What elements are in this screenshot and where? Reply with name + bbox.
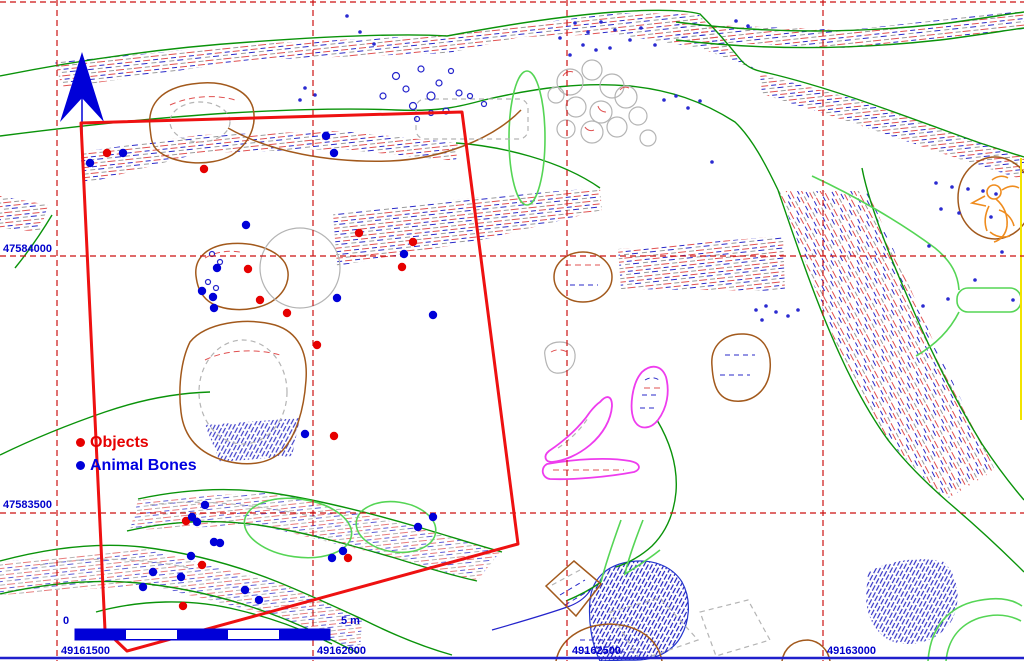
- x-coordinate-label: 49161500: [61, 645, 110, 657]
- animal-bone-point: [216, 539, 224, 547]
- animal-bone-point: [193, 518, 201, 526]
- orange-figure: [972, 176, 1019, 242]
- animal-bone-point: [322, 132, 330, 140]
- animal-bone-point: [339, 547, 347, 555]
- object-point: [330, 432, 338, 440]
- animal-bone-point: [255, 596, 263, 604]
- animal-bone-point: [177, 573, 185, 581]
- object-point: [200, 165, 208, 173]
- object-point: [344, 554, 352, 562]
- object-point: [355, 229, 363, 237]
- survey-map: 05 m 49161500491620004916250049163000475…: [0, 0, 1024, 661]
- animal-bone-point: [400, 250, 408, 258]
- animal-bone-point: [210, 304, 218, 312]
- animal-bone-point: [119, 149, 127, 157]
- object-point: [244, 265, 252, 273]
- animal-bone-point: [333, 294, 341, 302]
- animal-bone-point: [213, 264, 221, 272]
- legend-objects-label: Objects: [90, 435, 149, 451]
- svg-text:0: 0: [63, 615, 69, 627]
- y-coordinate-label: 47583500: [3, 499, 52, 511]
- animal-bone-point: [414, 523, 422, 531]
- animal-bone-point: [139, 583, 147, 591]
- object-point: [179, 602, 187, 610]
- animal-bone-point: [86, 159, 94, 167]
- animal-bone-point: [242, 221, 250, 229]
- x-coordinate-label: 49162500: [572, 645, 621, 657]
- x-coordinate-label: 49163000: [827, 645, 876, 657]
- animal-bone-point: [429, 311, 437, 319]
- animal-bone-point: [149, 568, 157, 576]
- object-point: [283, 309, 291, 317]
- map-canvas[interactable]: 05 m 49161500491620004916250049163000475…: [0, 0, 1024, 661]
- animal-bone-point: [201, 501, 209, 509]
- legend: Objects Animal Bones: [76, 431, 197, 477]
- object-point: [409, 238, 417, 246]
- animal-bone-point: [241, 586, 249, 594]
- object-point: [103, 149, 111, 157]
- legend-row-animal-bones: Animal Bones: [76, 454, 197, 477]
- animal-bones-dot-icon: [76, 461, 85, 470]
- legend-animal-bones-label: Animal Bones: [90, 458, 197, 474]
- objects-dot-icon: [76, 438, 85, 447]
- stone-circles-cluster: [548, 60, 656, 146]
- hatched-slope-bands: [0, 12, 1024, 654]
- animal-bone-point: [187, 552, 195, 560]
- animal-bone-point: [429, 513, 437, 521]
- animal-bone-point: [209, 293, 217, 301]
- svg-text:5 m: 5 m: [341, 615, 360, 627]
- object-point: [398, 263, 406, 271]
- animal-bone-point: [198, 287, 206, 295]
- x-coordinate-label: 49162000: [317, 645, 366, 657]
- legend-row-objects: Objects: [76, 431, 197, 454]
- object-point: [198, 561, 206, 569]
- object-point: [256, 296, 264, 304]
- animal-bone-point: [301, 430, 309, 438]
- object-point: [313, 341, 321, 349]
- magenta-features: [543, 367, 668, 479]
- animal-bone-point: [328, 554, 336, 562]
- animal-bone-point: [330, 149, 338, 157]
- y-coordinate-label: 47584000: [3, 243, 52, 255]
